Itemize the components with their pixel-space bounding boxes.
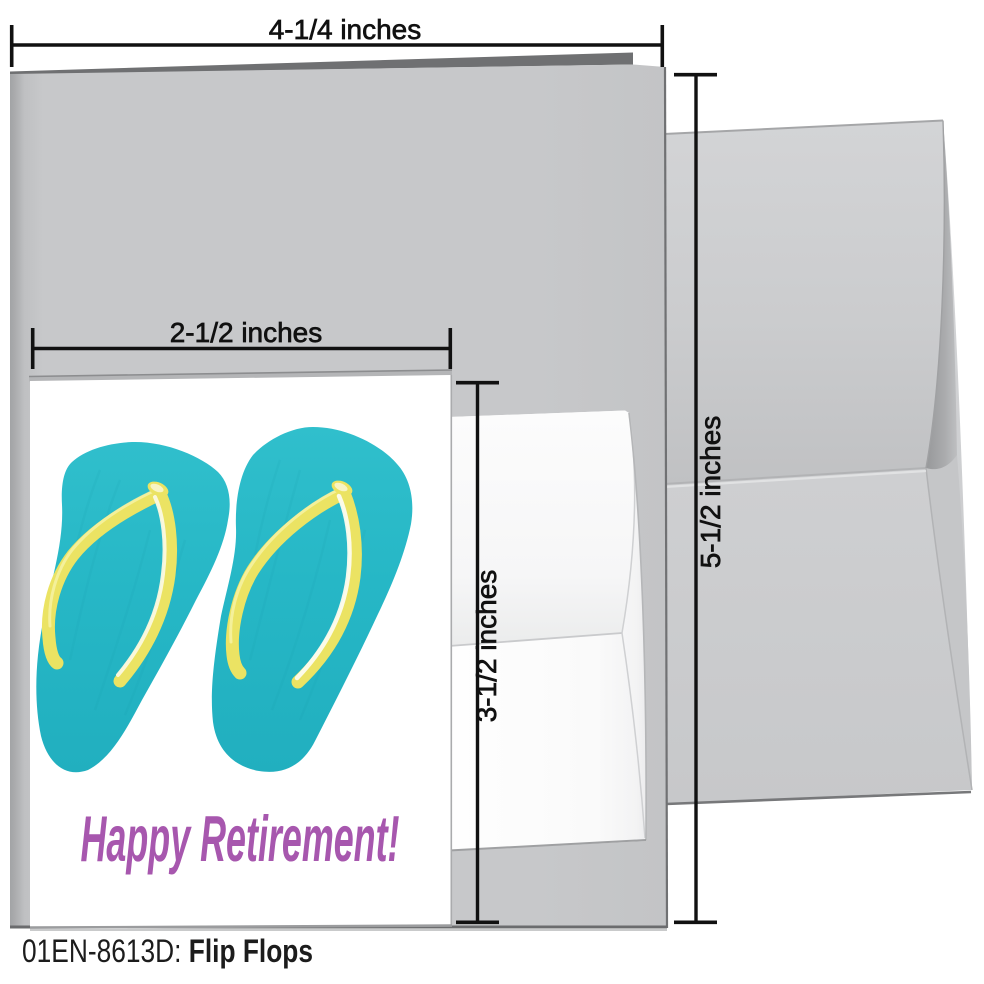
svg-text:4-1/4 inches: 4-1/4 inches (269, 14, 422, 45)
svg-text:01EN-8613D: Flip Flops: 01EN-8613D: Flip Flops (22, 933, 313, 969)
svg-text:3-1/2 inches: 3-1/2 inches (471, 570, 502, 723)
svg-text:5-1/2 inches: 5-1/2 inches (695, 416, 726, 569)
svg-text:Happy Retirement!: Happy Retirement! (81, 802, 400, 875)
svg-text:2-1/2 inches: 2-1/2 inches (170, 317, 323, 348)
